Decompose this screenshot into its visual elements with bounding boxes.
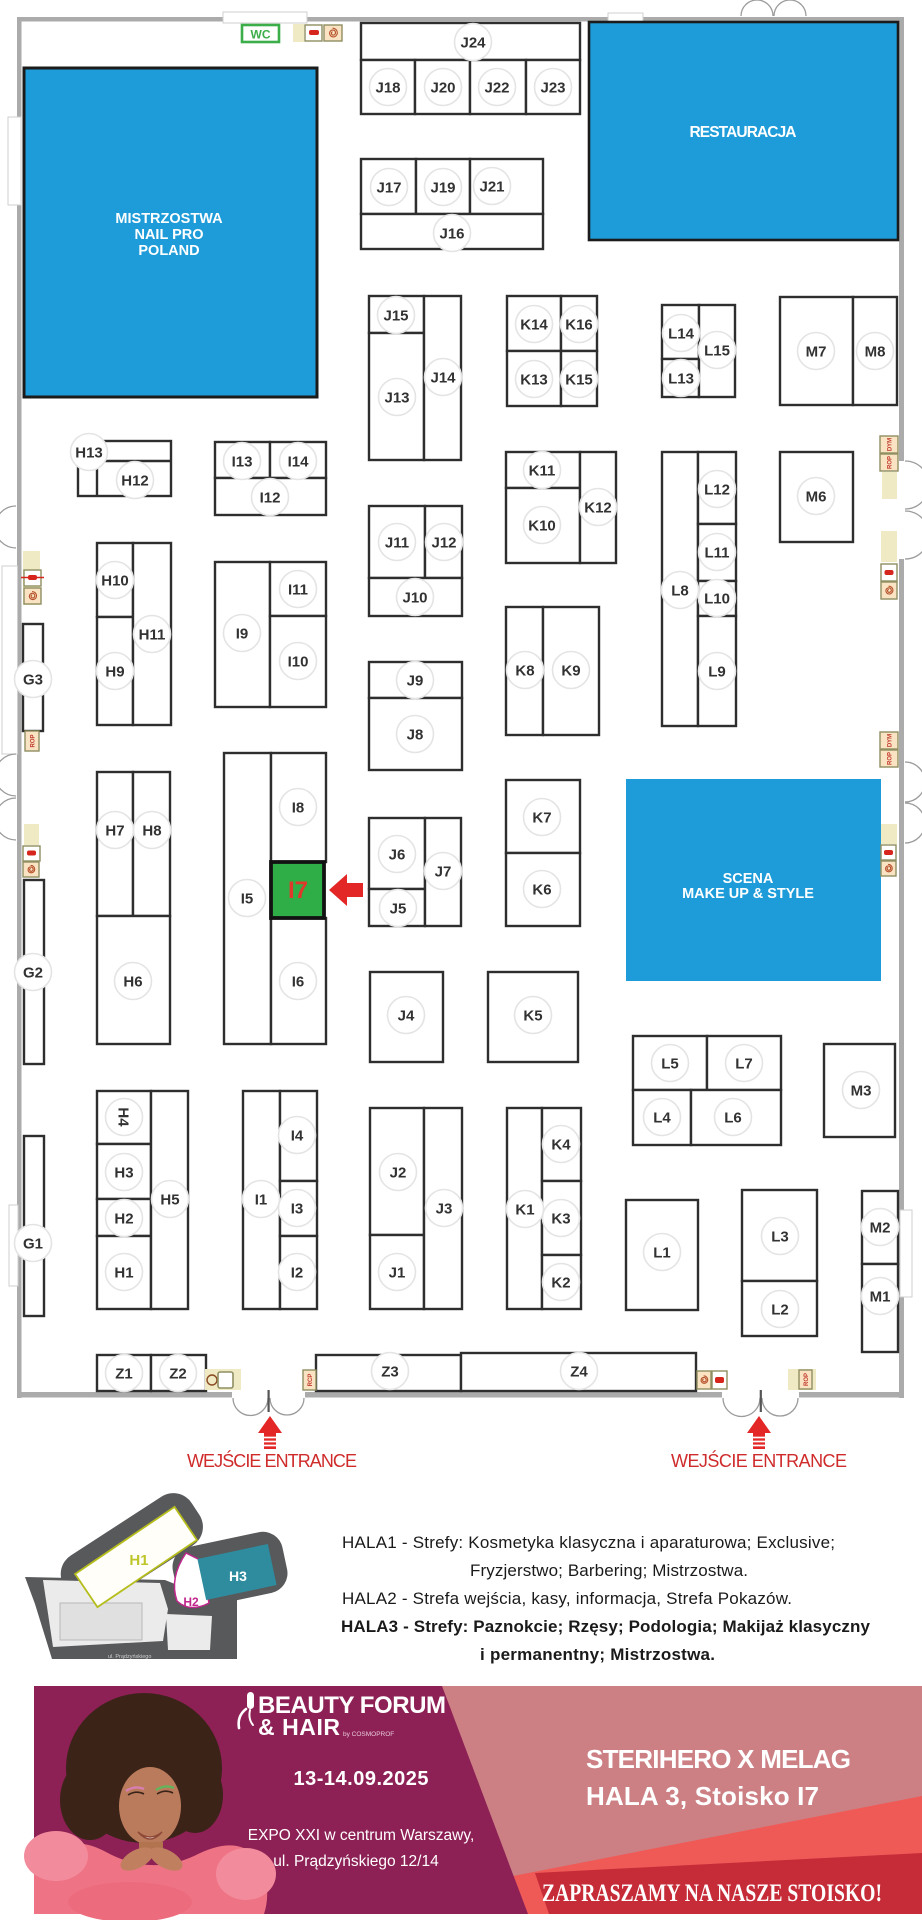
svg-text:J13: J13 xyxy=(384,389,409,406)
svg-text:I9: I9 xyxy=(236,625,249,642)
svg-text:K6: K6 xyxy=(532,881,551,898)
svg-text:I8: I8 xyxy=(292,799,305,816)
svg-text:ul. Prądzyńskiego: ul. Prądzyńskiego xyxy=(108,1654,151,1660)
svg-text:STERIHERO X MELAG: STERIHERO X MELAG xyxy=(586,1744,851,1774)
svg-text:H11: H11 xyxy=(139,626,166,643)
svg-text:M2: M2 xyxy=(870,1219,891,1236)
svg-text:L13: L13 xyxy=(668,370,694,387)
svg-text:J2: J2 xyxy=(390,1164,407,1181)
svg-text:J16: J16 xyxy=(439,225,464,242)
svg-text:Z1: Z1 xyxy=(115,1365,133,1382)
svg-text:H1: H1 xyxy=(129,1552,148,1569)
svg-text:H1: H1 xyxy=(114,1264,133,1281)
svg-text:L12: L12 xyxy=(704,481,730,498)
svg-text:MISTRZOSTWA: MISTRZOSTWA xyxy=(115,211,223,227)
svg-text:POLAND: POLAND xyxy=(138,243,199,259)
svg-text:K3: K3 xyxy=(551,1210,570,1227)
svg-text:H7: H7 xyxy=(105,822,124,839)
svg-text:RCP: RCP xyxy=(308,1374,314,1387)
svg-text:J4: J4 xyxy=(398,1007,415,1024)
svg-text:ZAPRASZAMY NA NASZE STOISKO!: ZAPRASZAMY NA NASZE STOISKO! xyxy=(542,1880,882,1907)
svg-text:K10: K10 xyxy=(528,517,556,534)
svg-text:H2: H2 xyxy=(183,1595,199,1609)
svg-text:I4: I4 xyxy=(291,1127,304,1144)
svg-text:by COSMOPROF: by COSMOPROF xyxy=(343,1731,394,1738)
svg-text:13-14.09.2025: 13-14.09.2025 xyxy=(294,1768,429,1790)
svg-text:G1: G1 xyxy=(23,1235,43,1252)
svg-text:WC: WC xyxy=(251,28,271,42)
svg-text:H3: H3 xyxy=(114,1164,133,1181)
svg-text:J9: J9 xyxy=(407,672,424,689)
svg-text:Z4: Z4 xyxy=(570,1363,588,1380)
svg-text:J18: J18 xyxy=(375,79,400,96)
svg-text:J10: J10 xyxy=(402,589,427,606)
svg-text:L2: L2 xyxy=(771,1301,789,1318)
svg-text:K5: K5 xyxy=(523,1007,542,1024)
svg-text:K14: K14 xyxy=(520,316,548,333)
svg-text:Fryzjerstwo; Barbering; Mistrz: Fryzjerstwo; Barbering; Mistrzostwa. xyxy=(470,1561,748,1580)
svg-text:H4: H4 xyxy=(115,1107,132,1127)
svg-text:K12: K12 xyxy=(584,499,612,516)
svg-text:I7: I7 xyxy=(288,877,308,904)
svg-text:RESTAURACJA: RESTAURACJA xyxy=(690,124,797,141)
svg-text:ROP: ROP xyxy=(31,734,37,747)
svg-text:HALA 3, Stoisko I7: HALA 3, Stoisko I7 xyxy=(586,1781,819,1811)
svg-text:DYM: DYM xyxy=(888,438,894,451)
svg-text:I2: I2 xyxy=(291,1264,304,1281)
svg-text:EXPO XXI w centrum Warszawy,: EXPO XXI w centrum Warszawy, xyxy=(248,1827,475,1844)
svg-text:J23: J23 xyxy=(540,79,565,96)
svg-text:K4: K4 xyxy=(551,1136,571,1153)
svg-text:L9: L9 xyxy=(708,663,726,680)
svg-text:H2: H2 xyxy=(114,1210,133,1227)
svg-text:J15: J15 xyxy=(383,307,408,324)
svg-text:J14: J14 xyxy=(430,369,456,386)
svg-text:J7: J7 xyxy=(435,863,452,880)
svg-text:K9: K9 xyxy=(561,662,580,679)
svg-text:i permanentny; Mistrzostwa.: i permanentny; Mistrzostwa. xyxy=(480,1645,715,1664)
svg-text:I13: I13 xyxy=(232,453,253,470)
svg-text:L10: L10 xyxy=(704,590,730,607)
svg-text:I5: I5 xyxy=(241,890,254,907)
svg-text:J19: J19 xyxy=(430,179,455,196)
svg-text:H9: H9 xyxy=(105,663,124,680)
svg-text:H8: H8 xyxy=(142,822,161,839)
svg-text:& HAIR: & HAIR xyxy=(258,1714,340,1740)
svg-text:H13: H13 xyxy=(75,444,103,461)
svg-text:J6: J6 xyxy=(389,846,406,863)
svg-text:ROP: ROP xyxy=(888,752,894,765)
svg-text:K8: K8 xyxy=(515,662,534,679)
svg-text:L11: L11 xyxy=(704,544,729,561)
svg-text:J8: J8 xyxy=(407,726,424,743)
svg-text:M7: M7 xyxy=(806,343,827,360)
svg-text:G3: G3 xyxy=(23,671,43,688)
svg-text:K11: K11 xyxy=(529,462,556,479)
svg-text:K2: K2 xyxy=(551,1274,570,1291)
svg-text:J3: J3 xyxy=(436,1200,453,1217)
svg-text:L7: L7 xyxy=(735,1055,753,1072)
svg-text:L14: L14 xyxy=(668,325,695,342)
svg-text:J21: J21 xyxy=(479,178,504,195)
svg-text:L5: L5 xyxy=(661,1055,679,1072)
svg-text:H5: H5 xyxy=(160,1191,179,1208)
svg-text:HALA2 - Strefa wejścia, kasy,: HALA2 - Strefa wejścia, kasy, informacja… xyxy=(342,1589,792,1608)
svg-text:J5: J5 xyxy=(390,900,407,917)
svg-text:ROP: ROP xyxy=(804,1373,810,1386)
svg-text:M3: M3 xyxy=(851,1082,872,1099)
svg-text:MAKE UP & STYLE: MAKE UP & STYLE xyxy=(682,886,814,902)
svg-text:L4: L4 xyxy=(653,1109,671,1126)
svg-text:ul. Prądzyńskiego 12/14: ul. Prądzyńskiego 12/14 xyxy=(273,1853,439,1870)
svg-text:J1: J1 xyxy=(389,1264,406,1281)
svg-text:L6: L6 xyxy=(724,1109,742,1126)
svg-text:HALA1 - Strefy: Kosmetyka klas: HALA1 - Strefy: Kosmetyka klasyczna i ap… xyxy=(342,1533,835,1552)
svg-text:I12: I12 xyxy=(260,489,281,506)
svg-text:SCENA: SCENA xyxy=(723,871,774,887)
svg-text:WEJŚCIE ENTRANCE: WEJŚCIE ENTRANCE xyxy=(187,1450,357,1471)
svg-text:H12: H12 xyxy=(121,472,149,489)
svg-text:I3: I3 xyxy=(291,1200,304,1217)
svg-text:M1: M1 xyxy=(870,1288,891,1305)
svg-text:J17: J17 xyxy=(376,179,401,196)
svg-text:I1: I1 xyxy=(255,1191,268,1208)
svg-text:I11: I11 xyxy=(288,581,308,598)
svg-text:NAIL PRO: NAIL PRO xyxy=(134,227,203,243)
svg-text:H10: H10 xyxy=(101,572,129,589)
svg-text:I10: I10 xyxy=(288,653,309,670)
svg-text:M6: M6 xyxy=(806,488,827,505)
svg-text:H6: H6 xyxy=(123,973,142,990)
svg-text:Z2: Z2 xyxy=(169,1365,187,1382)
svg-text:ROP: ROP xyxy=(888,456,894,469)
svg-text:L8: L8 xyxy=(671,582,689,599)
svg-text:L3: L3 xyxy=(771,1228,789,1245)
svg-text:L1: L1 xyxy=(653,1244,671,1261)
svg-text:J12: J12 xyxy=(431,534,456,551)
svg-text:J24: J24 xyxy=(460,34,486,51)
svg-text:L15: L15 xyxy=(704,342,730,359)
svg-text:I6: I6 xyxy=(292,973,305,990)
svg-text:M8: M8 xyxy=(865,343,886,360)
svg-text:I14: I14 xyxy=(288,453,310,470)
svg-text:DYM: DYM xyxy=(888,734,894,747)
svg-text:K15: K15 xyxy=(565,371,593,388)
svg-text:J22: J22 xyxy=(484,79,509,96)
svg-text:K16: K16 xyxy=(565,316,593,333)
svg-text:G2: G2 xyxy=(23,964,43,981)
svg-text:H3: H3 xyxy=(229,1568,247,1584)
svg-text:J20: J20 xyxy=(430,79,455,96)
svg-text:K1: K1 xyxy=(515,1201,534,1218)
svg-text:J11: J11 xyxy=(385,534,409,551)
svg-text:HALA3 - Strefy: Paznokcie; Rzę: HALA3 - Strefy: Paznokcie; Rzęsy; Podolo… xyxy=(341,1617,871,1636)
svg-text:WEJŚCIE ENTRANCE: WEJŚCIE ENTRANCE xyxy=(671,1450,847,1471)
svg-text:K7: K7 xyxy=(532,809,551,826)
svg-text:K13: K13 xyxy=(520,371,548,388)
svg-text:Z3: Z3 xyxy=(381,1363,399,1380)
